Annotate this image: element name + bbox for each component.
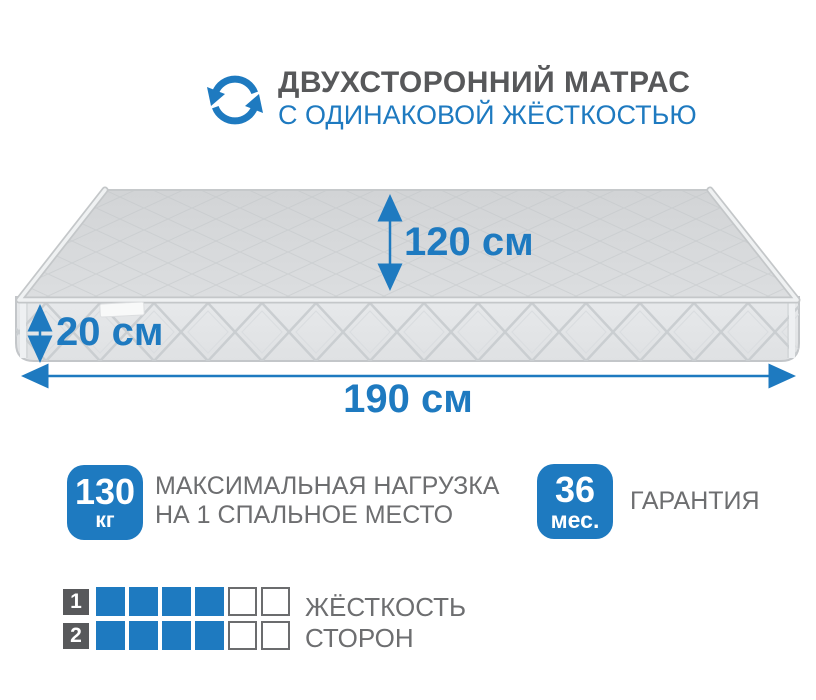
- max-load-value: 130: [75, 474, 135, 510]
- firmness-cell-filled: [162, 621, 191, 650]
- length-dimension-label: 190 см: [302, 378, 514, 420]
- max-load-label-line2: НА 1 СПАЛЬНОЕ МЕСТО: [155, 501, 499, 530]
- firmness-side-number: 1: [63, 589, 89, 615]
- firmness-cell-filled: [162, 587, 191, 616]
- firmness-cell-empty: [261, 621, 290, 650]
- firmness-cell-filled: [129, 587, 158, 616]
- firmness-cell-filled: [96, 621, 125, 650]
- warranty-label: ГАРАНТИЯ: [630, 487, 760, 516]
- rotate-arrows-icon: [204, 66, 266, 134]
- firmness-cell-empty: [228, 621, 257, 650]
- firmness-row: 2: [63, 621, 294, 650]
- firmness-cell-filled: [96, 587, 125, 616]
- firmness-label-line1: ЖЁСТКОСТЬ: [305, 592, 466, 623]
- max-load-label: МАКСИМАЛЬНАЯ НАГРУЗКА НА 1 СПАЛЬНОЕ МЕСТ…: [155, 472, 499, 530]
- firmness-cell-empty: [228, 587, 257, 616]
- warranty-value: 36: [555, 472, 595, 508]
- warranty-badge: 36 мес.: [537, 464, 613, 539]
- header: ДВУХСТОРОННИЙ МАТРАС С ОДИНАКОВОЙ ЖЁСТКО…: [278, 66, 682, 131]
- firmness-cell-filled: [129, 621, 158, 650]
- firmness-row: 1: [63, 587, 294, 616]
- warranty-unit: мес.: [551, 508, 600, 532]
- firmness-cell-filled: [195, 621, 224, 650]
- firmness-scale: 12: [63, 587, 294, 655]
- max-load-label-line1: МАКСИМАЛЬНАЯ НАГРУЗКА: [155, 472, 499, 501]
- firmness-cell-filled: [195, 587, 224, 616]
- firmness-side-number: 2: [63, 623, 89, 649]
- firmness-cell-empty: [261, 587, 290, 616]
- mattress-infographic: ДВУХСТОРОННИЙ МАТРАС С ОДИНАКОВОЙ ЖЁСТКО…: [0, 0, 816, 700]
- depth-dimension-label: 120 см: [404, 221, 534, 263]
- page-subtitle: С ОДИНАКОВОЙ ЖЁСТКОСТЬЮ: [278, 100, 682, 131]
- max-load-unit: кг: [95, 510, 114, 532]
- firmness-label-line2: СТОРОН: [305, 623, 466, 654]
- max-load-badge: 130 кг: [67, 465, 143, 540]
- firmness-label: ЖЁСТКОСТЬ СТОРОН: [305, 592, 466, 654]
- page-title: ДВУХСТОРОННИЙ МАТРАС: [278, 66, 682, 100]
- height-dimension-label: 20 см: [56, 311, 163, 353]
